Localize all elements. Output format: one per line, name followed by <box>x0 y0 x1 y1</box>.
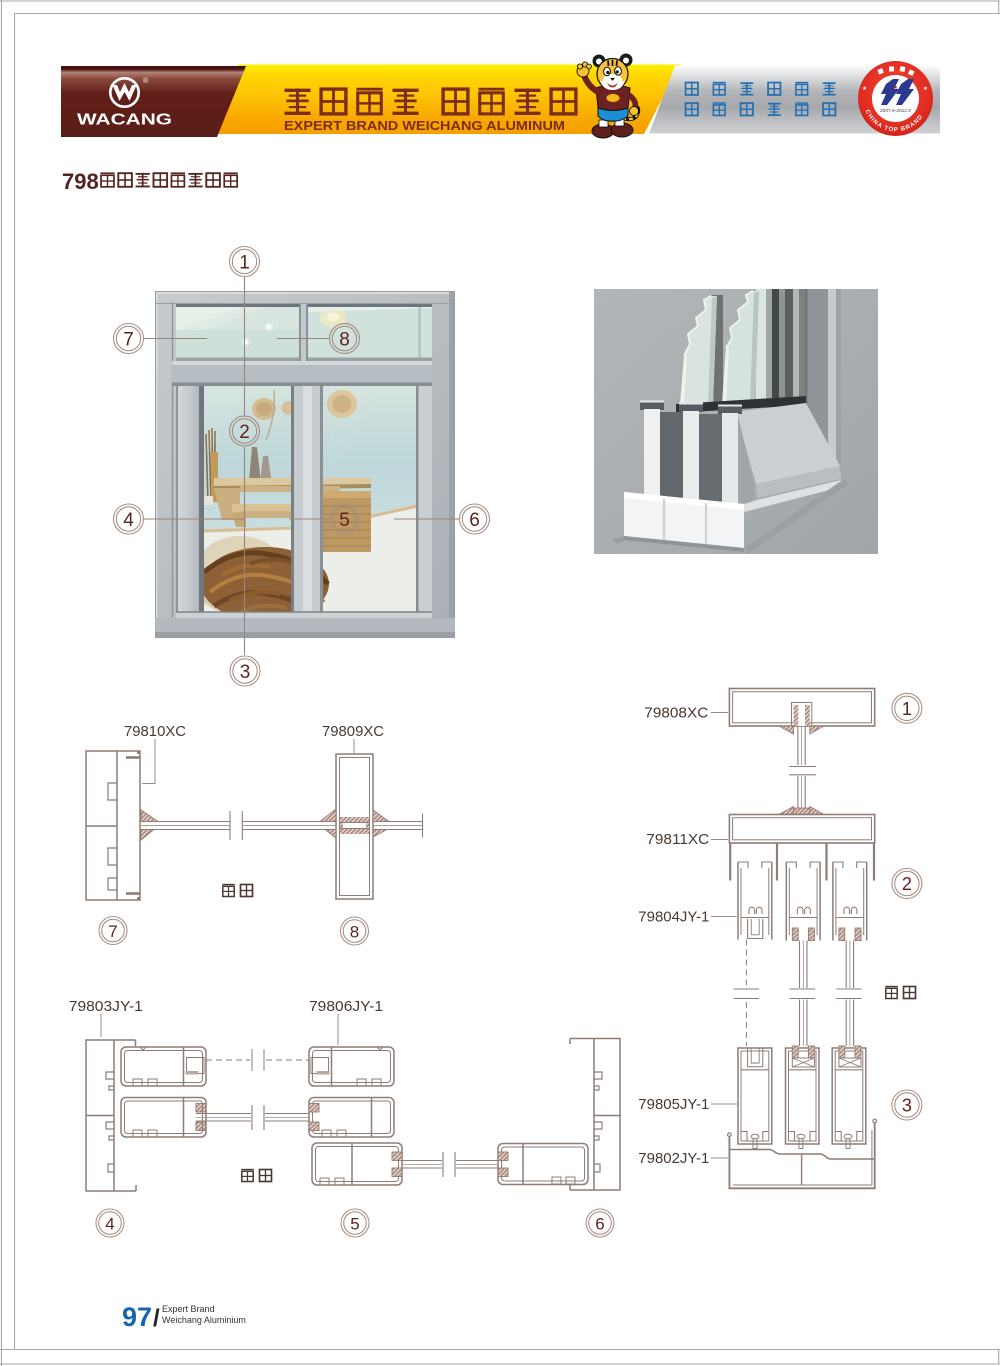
svg-text:79808XC: 79808XC <box>644 705 708 722</box>
svg-text:1: 1 <box>902 699 912 719</box>
svg-text:Weichang Aluminium: Weichang Aluminium <box>162 1315 246 1325</box>
svg-text:4: 4 <box>123 510 134 531</box>
svg-text:®: ® <box>143 77 149 85</box>
svg-text:6: 6 <box>469 510 480 531</box>
svg-text:2: 2 <box>239 422 250 443</box>
svg-text:79810XC: 79810XC <box>124 723 186 740</box>
svg-text:79805JY-1: 79805JY-1 <box>638 1096 709 1113</box>
svg-text:WACANG: WACANG <box>77 112 172 129</box>
svg-text:4: 4 <box>105 1215 114 1234</box>
svg-text:79804JY-1: 79804JY-1 <box>638 909 709 926</box>
svg-text:★: ★ <box>862 85 867 92</box>
svg-text:3: 3 <box>240 662 251 683</box>
svg-text:3: 3 <box>902 1096 912 1116</box>
svg-text:EXPERT BRAND WEICHANG ALUMINUM: EXPERT BRAND WEICHANG ALUMINUM <box>284 118 565 133</box>
svg-text:8: 8 <box>350 923 359 942</box>
svg-text:79802JY-1: 79802JY-1 <box>638 1150 709 1167</box>
svg-text:1: 1 <box>239 253 250 274</box>
svg-text:798: 798 <box>62 169 99 194</box>
svg-text:8: 8 <box>339 330 350 351</box>
svg-text:Expert Brand: Expert Brand <box>162 1304 215 1314</box>
svg-text:79809XC: 79809XC <box>322 723 384 740</box>
svg-text:97: 97 <box>122 1302 152 1332</box>
svg-text:/: / <box>153 1305 160 1332</box>
svg-text:2007.9-2012.9: 2007.9-2012.9 <box>880 108 911 114</box>
svg-text:7: 7 <box>108 922 117 941</box>
svg-text:79806JY-1: 79806JY-1 <box>309 998 383 1015</box>
svg-text:79811XC: 79811XC <box>646 831 709 848</box>
svg-text:79803JY-1: 79803JY-1 <box>69 998 143 1015</box>
svg-text:2: 2 <box>902 874 912 894</box>
svg-text:7: 7 <box>123 330 134 351</box>
svg-text:5: 5 <box>350 1215 359 1234</box>
svg-text:★: ★ <box>893 84 898 91</box>
svg-text:★: ★ <box>923 85 928 92</box>
svg-text:5: 5 <box>339 510 350 531</box>
svg-text:6: 6 <box>595 1215 604 1234</box>
